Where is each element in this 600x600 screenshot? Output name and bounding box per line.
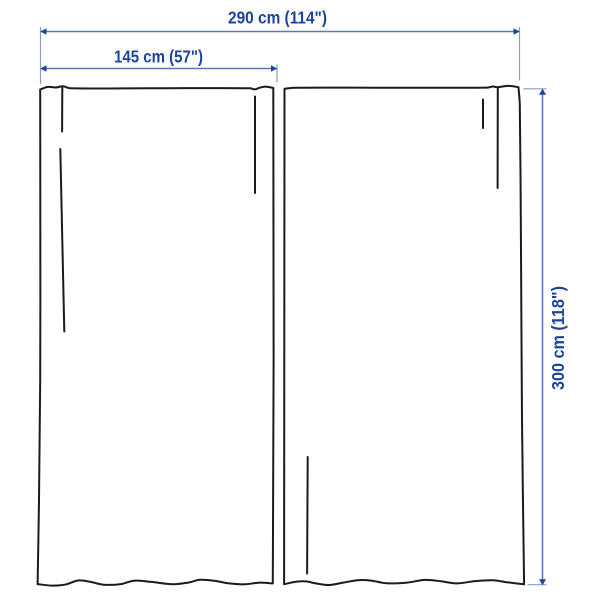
svg-text:300 cm (118"): 300 cm (118") [548, 286, 568, 390]
svg-text:290 cm (114"): 290 cm (114") [228, 8, 327, 28]
svg-text:145 cm (57"): 145 cm (57") [114, 46, 203, 66]
